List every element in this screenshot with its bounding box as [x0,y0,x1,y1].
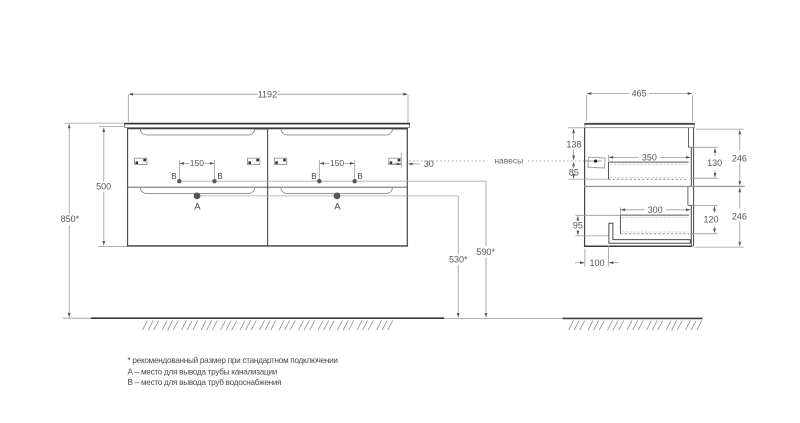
svg-text:B: B [217,172,222,181]
svg-text:B: B [357,172,362,181]
svg-text:590*: 590* [476,247,495,257]
svg-text:85: 85 [569,167,579,177]
svg-text:130: 130 [707,158,722,168]
svg-text:В – место для вывода труб водо: В – место для вывода труб водоснабжения [128,378,282,387]
svg-text:B: B [311,172,316,181]
svg-text:A: A [334,201,341,212]
svg-text:B: B [171,172,176,181]
svg-text:300: 300 [648,205,663,215]
svg-text:350: 350 [642,153,657,163]
svg-text:500: 500 [96,182,111,192]
svg-text:A: A [194,201,201,212]
svg-text:150: 150 [330,158,344,168]
svg-text:95: 95 [573,221,583,231]
svg-text:530*: 530* [449,254,468,264]
svg-text:246: 246 [732,153,747,163]
svg-text:120: 120 [703,215,718,225]
svg-text:100: 100 [589,258,604,268]
svg-text:150: 150 [190,158,204,168]
svg-text:навесы: навесы [494,155,523,165]
svg-text:* рекомендованный размер при с: * рекомендованный размер при стандартном… [128,356,338,365]
svg-text:А – место для вывода трубы кан: А – место для вывода трубы канализации [128,368,278,377]
svg-text:465: 465 [632,89,647,99]
svg-text:246: 246 [732,212,747,222]
svg-text:138: 138 [566,139,581,149]
svg-text:1192: 1192 [258,89,277,99]
svg-text:850*: 850* [61,214,80,224]
